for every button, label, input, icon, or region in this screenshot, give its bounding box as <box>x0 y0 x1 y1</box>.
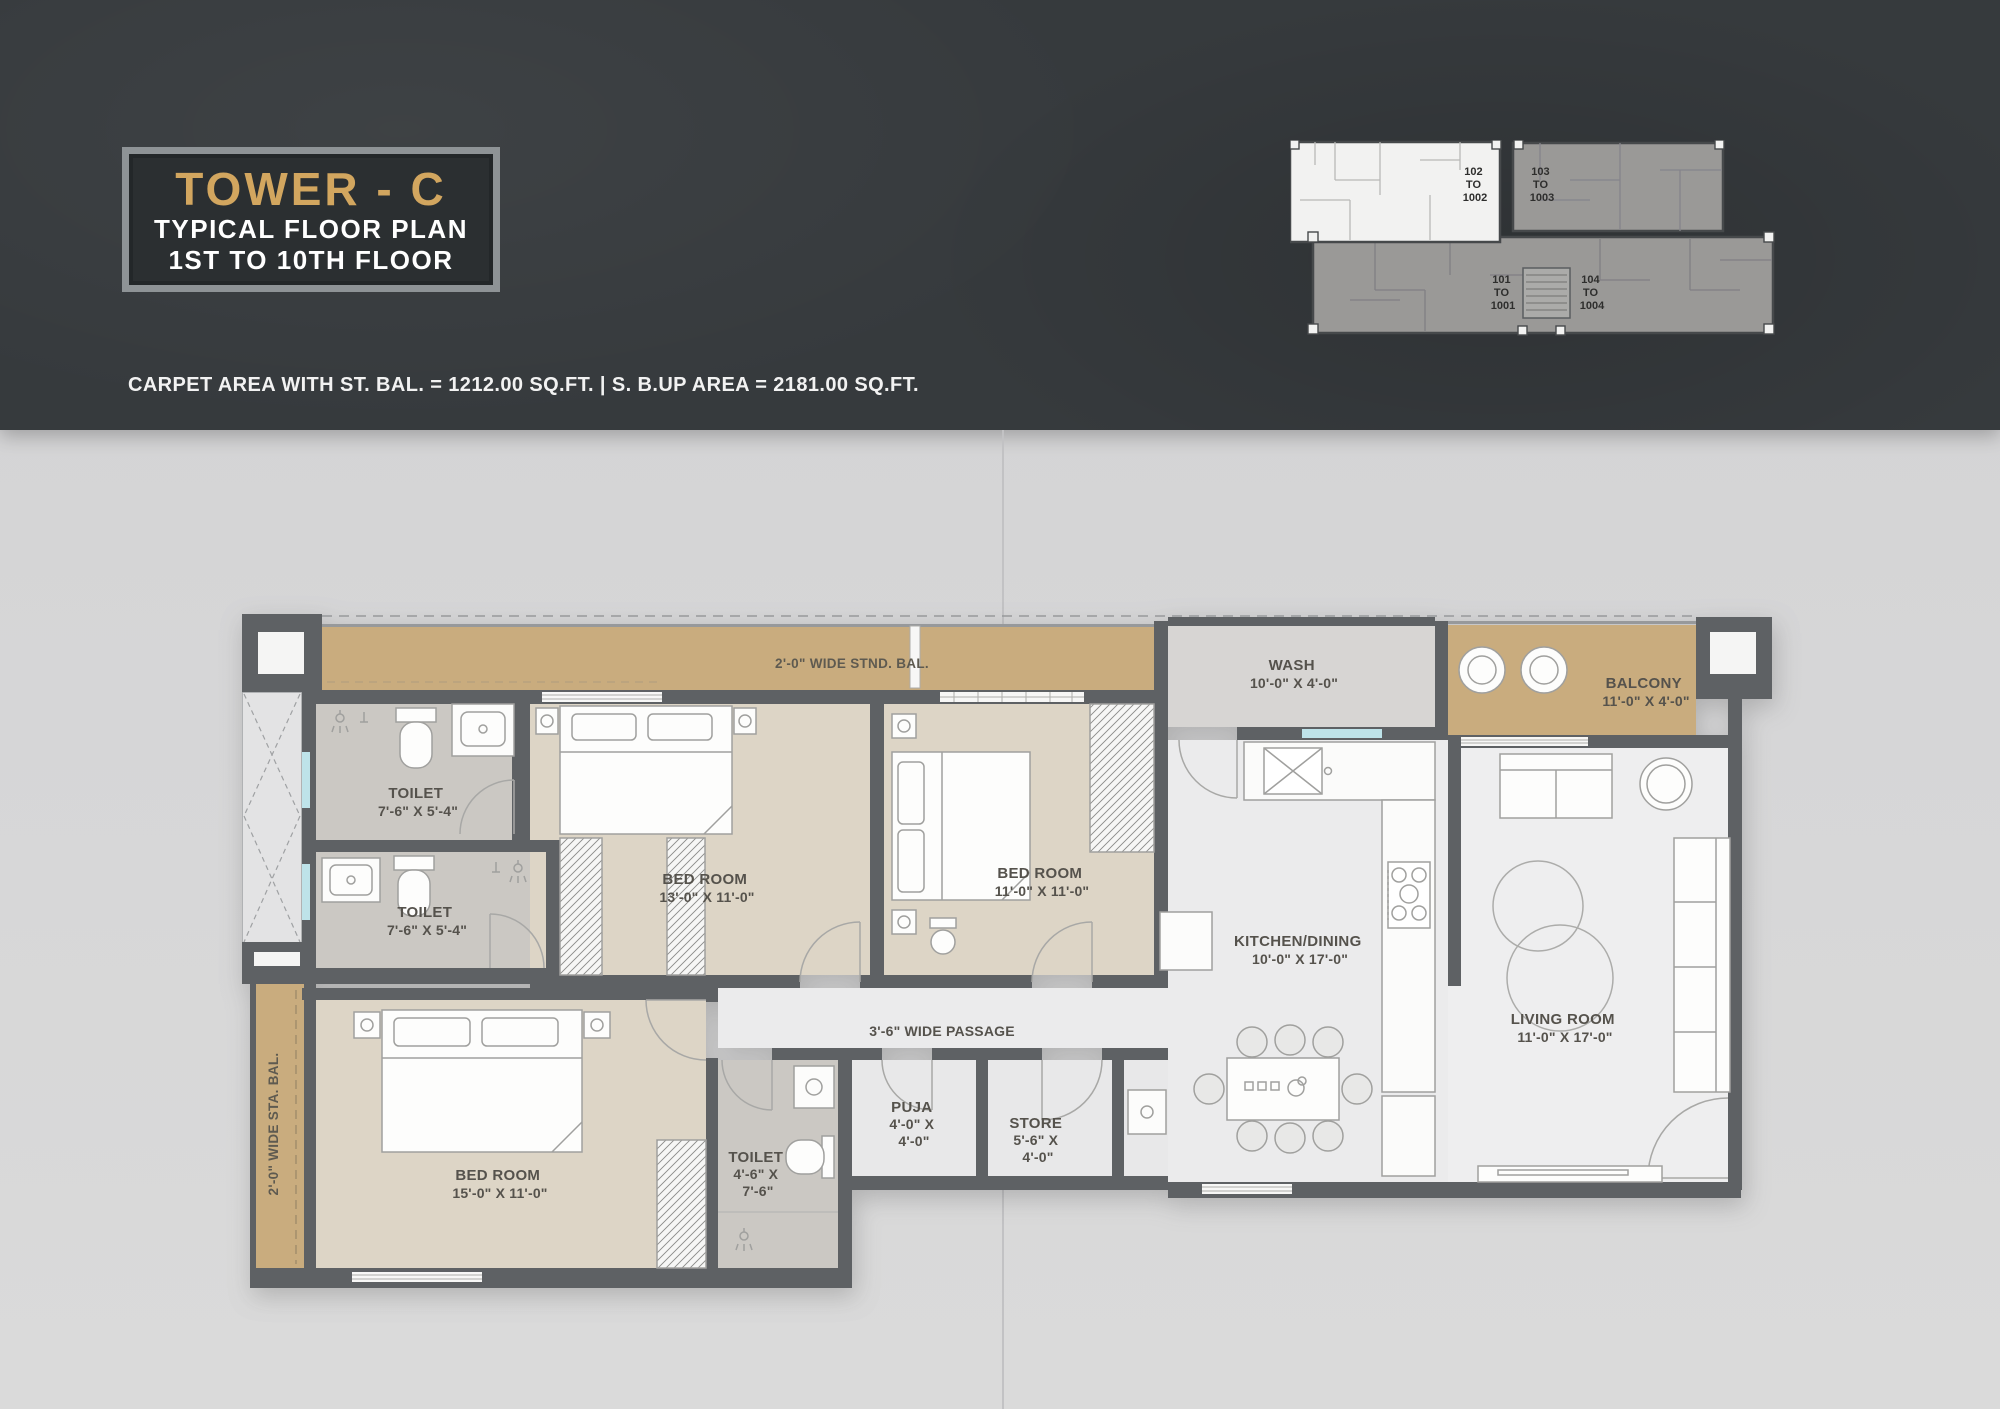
header-band: TOWER - C TYPICAL FLOOR PLAN 1ST TO 10TH… <box>0 0 2000 430</box>
key-plan-unit-103: 103 TO 1003 <box>1530 166 1554 204</box>
room-label-passage: 3'-6" WIDE PASSAGE <box>869 1023 1015 1039</box>
wardrobe-icon <box>1090 704 1154 852</box>
window <box>302 752 310 808</box>
wardrobe-icon <box>560 838 602 975</box>
basin-icon <box>452 704 514 756</box>
wc-icon <box>786 1136 834 1178</box>
wc-icon <box>396 708 436 768</box>
window <box>1302 729 1382 738</box>
window <box>542 692 662 702</box>
room-label-stnd-bal: 2'-0" WIDE STND. BAL. <box>775 656 929 671</box>
window <box>352 1272 482 1282</box>
key-plan: 102 TO 1002 103 TO 1003 101 TO 1001 104 … <box>1290 140 1780 340</box>
passage-floor <box>718 988 1168 1048</box>
stove-icon <box>1388 862 1430 928</box>
standard-balcony-floor <box>322 625 1154 690</box>
long-sofa-icon <box>1674 838 1730 1092</box>
subtitle-plan-type: TYPICAL FLOOR PLAN <box>154 214 468 245</box>
key-plan-unit-101: 101 TO 1001 <box>1491 274 1515 312</box>
sofa-icon <box>1500 754 1612 818</box>
window <box>1202 1184 1292 1194</box>
duct-shaft <box>242 692 302 944</box>
bed-icon <box>382 1010 582 1152</box>
floor-plan: 2'-0" WIDE STND. BAL. TOILET 7'-6" X 5'-… <box>242 612 1772 1288</box>
area-note: CARPET AREA WITH ST. BAL. = 1212.00 SQ.F… <box>128 374 919 397</box>
key-plan-lower-slab <box>1313 237 1773 333</box>
window <box>302 864 310 920</box>
subtitle-floor-range: 1ST TO 10TH FLOOR <box>168 245 453 276</box>
title-box: TOWER - C TYPICAL FLOOR PLAN 1ST TO 10TH… <box>122 147 500 292</box>
bed-icon <box>560 706 732 834</box>
key-plan-unit-102: 102 TO 1002 <box>1463 166 1487 204</box>
basin-icon <box>794 1066 834 1108</box>
round-table-icon <box>1640 758 1692 810</box>
basin-icon <box>322 858 380 902</box>
stair-icon <box>1523 268 1570 318</box>
dining-table-icon <box>1227 1058 1339 1120</box>
wash-floor <box>1168 621 1435 727</box>
page-title: TOWER - C <box>175 164 446 214</box>
kitchen-duct <box>1160 912 1212 970</box>
balcony-slider-window <box>1461 737 1588 746</box>
wardrobe-icon <box>667 838 705 975</box>
basin-icon <box>1128 1090 1166 1134</box>
wardrobe-icon <box>657 1140 706 1268</box>
wc-icon <box>930 918 956 954</box>
sink-icon <box>1264 748 1332 794</box>
window <box>940 692 1084 702</box>
tv-console-icon <box>1478 1166 1662 1182</box>
room-label-sta-bal: 2'-0" WIDE STA. BAL. <box>266 1053 281 1196</box>
